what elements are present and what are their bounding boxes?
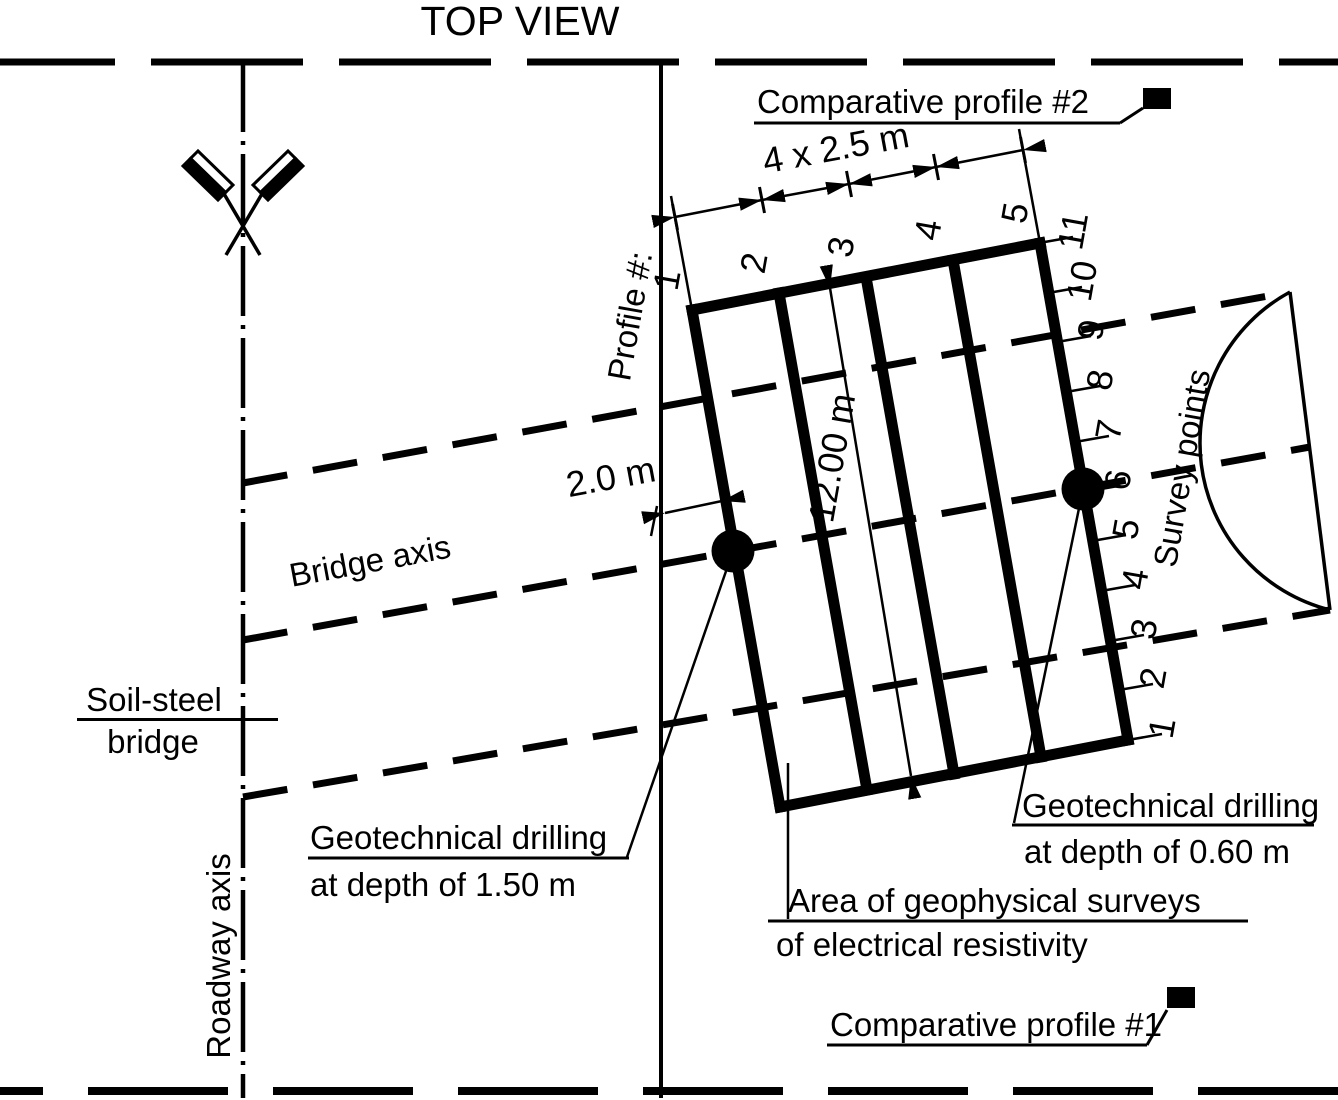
comparative-profile-2-leader <box>1120 108 1143 123</box>
bridge-axis-label: Bridge axis <box>286 528 453 594</box>
soil-steel-line2: bridge <box>107 723 199 760</box>
survey-point-number-11: 11 <box>1049 209 1096 253</box>
drilling-shallow-line2: at depth of 0.60 m <box>1024 833 1290 870</box>
profile-axis-label: Profile #: <box>600 249 659 384</box>
leader-drilling-deep <box>627 551 733 857</box>
dim-segment-1 <box>675 200 762 217</box>
area-line1: Area of geophysical surveys <box>788 882 1201 919</box>
profile-number-4: 4 <box>906 216 950 243</box>
comparative-profile-2-label: Comparative profile #2 <box>754 83 1171 123</box>
area-label: Area of geophysical surveys of electrica… <box>768 882 1248 963</box>
drilling-deep-line2: at depth of 1.50 m <box>310 866 576 903</box>
dim-segment-2 <box>762 184 849 200</box>
comparative-profile-1-marker <box>1167 987 1195 1008</box>
comparative-profile-1-label: Comparative profile #1 <box>827 987 1195 1045</box>
profile-number-5: 5 <box>993 199 1037 226</box>
flag-staff-right <box>226 187 266 255</box>
dimension-edge-offset: 2.0 m <box>563 448 722 536</box>
drilling-shallow-label: Geotechnical drilling at depth of 0.60 m <box>1012 787 1319 870</box>
survey-points-label: Survey points <box>1146 366 1217 569</box>
drilling-deep-line1: Geotechnical drilling <box>310 819 607 856</box>
soil-steel-line1: Soil-steel <box>86 681 222 718</box>
drawing-page: TOP VIEW <box>0 0 1338 1100</box>
profile-line-2 <box>779 293 867 790</box>
dim-offset-line <box>665 501 722 513</box>
dim-offset-tick <box>651 506 657 536</box>
dim-edge-offset-label: 2.0 m <box>563 448 659 505</box>
survey-points-brace <box>1200 292 1330 610</box>
profile-number-2: 2 <box>732 249 776 276</box>
drilling-deep-label: Geotechnical drilling at depth of 1.50 m <box>308 819 629 903</box>
flag-right-icon <box>253 151 303 200</box>
roadway-axis-label: Roadway axis <box>200 853 237 1058</box>
comparative-profile-1-text: Comparative profile #1 <box>830 1006 1162 1043</box>
area-line2: of electrical resistivity <box>776 926 1088 963</box>
comparative-profile-2-text: Comparative profile #2 <box>757 83 1089 120</box>
dim-segment-3 <box>849 167 936 184</box>
flag-left-icon <box>183 151 233 200</box>
top-view-drawing: TOP VIEW <box>0 0 1338 1100</box>
flag-staff-left <box>220 187 260 255</box>
dim-segment-4 <box>936 150 1023 167</box>
drilling-shallow-line1: Geotechnical drilling <box>1022 787 1319 824</box>
soil-steel-bridge-label: Soil-steel bridge <box>77 681 278 760</box>
survey-grid <box>692 243 1128 807</box>
bridge-edge-lower-line <box>243 610 1330 797</box>
survey-point-number-10: 10 <box>1058 258 1105 305</box>
bridge-edge-upper-line <box>243 292 1290 483</box>
comparative-profile-2-marker <box>1143 88 1171 109</box>
page-title: TOP VIEW <box>421 0 620 44</box>
profile-number-3: 3 <box>819 233 863 260</box>
